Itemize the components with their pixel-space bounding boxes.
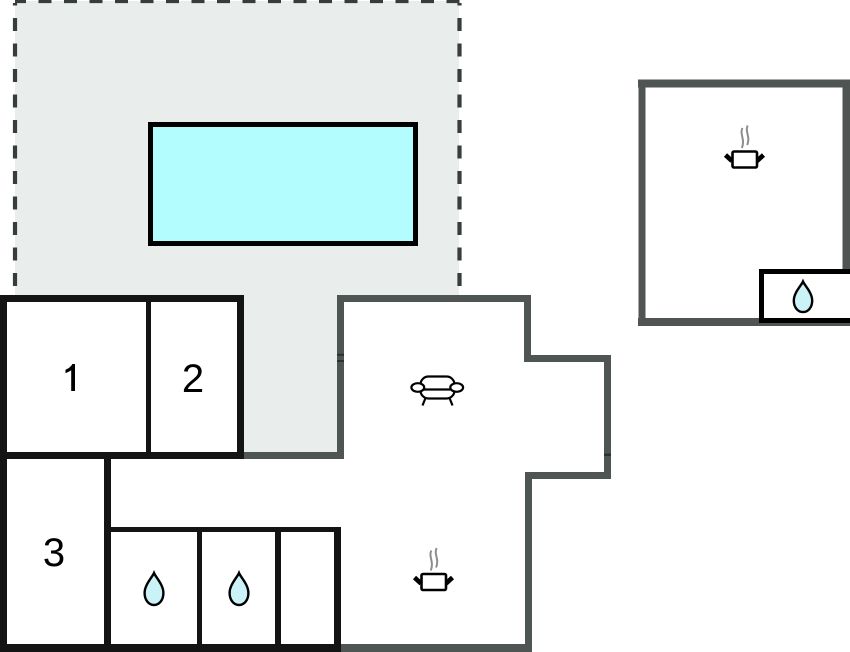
svg-text:3: 3 bbox=[43, 531, 65, 575]
svg-text:2: 2 bbox=[182, 357, 204, 401]
